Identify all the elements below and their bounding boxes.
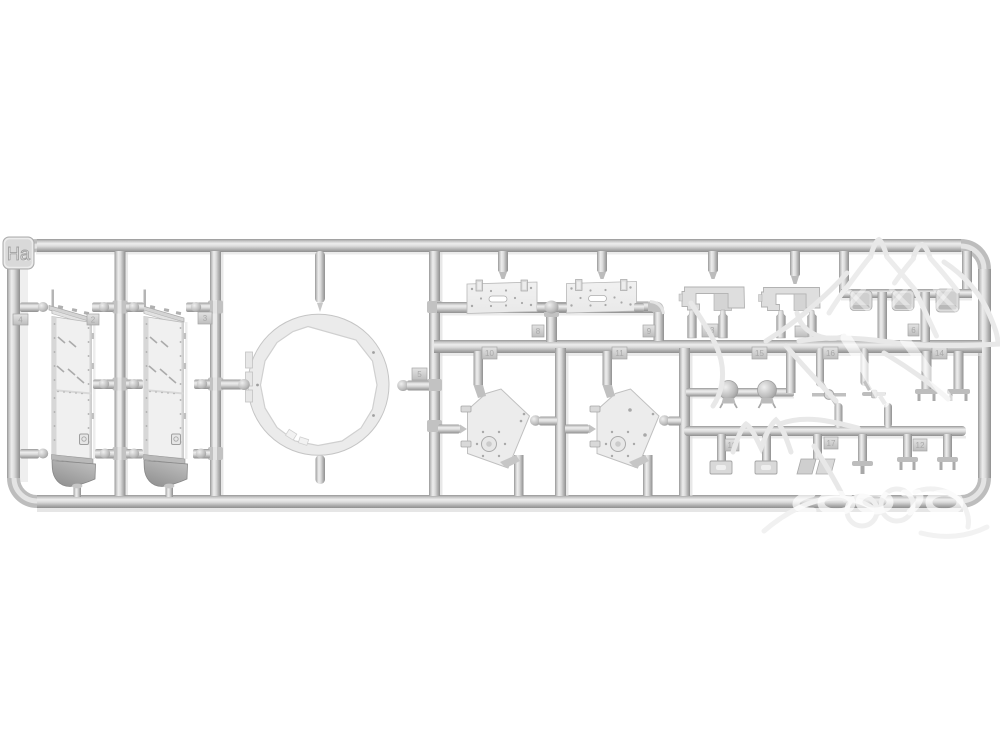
svg-text:6: 6 <box>911 326 916 335</box>
svg-text:8: 8 <box>536 327 541 336</box>
svg-text:11: 11 <box>615 349 624 358</box>
svg-text:4: 4 <box>18 316 23 325</box>
svg-text:5: 5 <box>417 370 422 379</box>
svg-text:2: 2 <box>91 316 96 325</box>
svg-text:Ha: Ha <box>7 244 31 264</box>
svg-text:17: 17 <box>827 439 836 448</box>
svg-text:9: 9 <box>647 327 652 336</box>
svg-text:15: 15 <box>755 349 764 358</box>
svg-text:3: 3 <box>203 314 208 323</box>
svg-text:12: 12 <box>916 441 925 450</box>
svg-text:14: 14 <box>935 349 944 358</box>
svg-text:10: 10 <box>485 349 494 358</box>
svg-text:16: 16 <box>826 349 835 358</box>
